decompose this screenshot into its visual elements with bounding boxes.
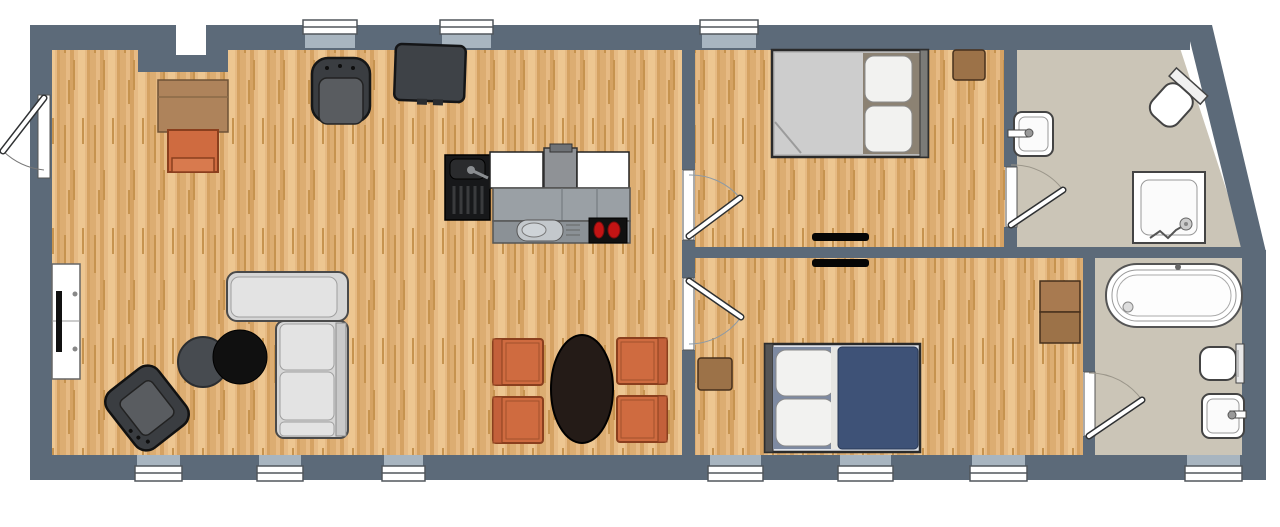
wall-interior-c2 (1004, 227, 1017, 250)
blanket-blue (838, 347, 918, 449)
tv-sideboard (52, 264, 80, 379)
office-chair (312, 58, 370, 124)
dining-chair-tr (617, 338, 667, 384)
kitchen-hood (544, 148, 577, 188)
media-cabinet (394, 44, 466, 106)
burner-1 (594, 222, 604, 238)
wall-interior-a3 (682, 350, 695, 455)
floor-plan (0, 0, 1280, 527)
bathroom-1-shower (1133, 172, 1205, 243)
wall-interior-b (695, 247, 1246, 258)
dresser (1040, 281, 1080, 343)
window-bathroom-2 (1185, 455, 1242, 481)
bathroom-2-toilet (1200, 344, 1244, 383)
bathtub-drain (1123, 302, 1133, 312)
floor-plan-canvas (0, 0, 1280, 527)
pillow (776, 399, 834, 446)
bed-1 (772, 50, 928, 157)
wall-interior-a2 (682, 240, 695, 278)
window-bottom-5 (838, 455, 893, 481)
dining-chair-tl (493, 339, 543, 385)
dining-table (551, 335, 613, 443)
entrance-door (3, 95, 50, 178)
dining-chair-bl (493, 397, 543, 443)
window-top-1 (303, 20, 357, 48)
wall-vent-bedroom-2 (812, 259, 869, 267)
wall-bottom (30, 455, 1266, 480)
headboard (765, 344, 773, 452)
bed-2 (765, 344, 920, 452)
bathroom-2-sink (1202, 394, 1246, 438)
window-bottom-1 (135, 455, 182, 481)
window-bottom-3 (382, 455, 425, 481)
window-bottom-2 (257, 455, 303, 481)
nightstand-bedroom-1 (953, 50, 985, 80)
wall-interior-d1 (1083, 258, 1095, 372)
bathroom-1-sink (1008, 112, 1053, 156)
headboard (920, 50, 928, 157)
wall-left (30, 25, 52, 480)
burner-2 (608, 222, 620, 238)
dining-chair-br (617, 396, 667, 442)
window-bottom-4 (708, 455, 763, 481)
window-top-2 (440, 20, 493, 48)
coffee-table-black (213, 330, 267, 384)
tv (56, 291, 62, 352)
wall-top-notch (176, 12, 206, 55)
wall-right (1242, 250, 1266, 480)
kitchen-counter-2 (577, 152, 629, 188)
window-bottom-6 (970, 455, 1027, 481)
pillow (865, 106, 912, 152)
nightstand-bedroom-2 (698, 358, 732, 390)
kitchen-counter-1 (490, 152, 543, 188)
pillow (776, 350, 834, 396)
window-top-3 (700, 20, 758, 48)
wall-vent-bedroom-1 (812, 233, 869, 241)
bathtub (1106, 264, 1242, 327)
desk (158, 80, 228, 132)
desk-chair (168, 130, 218, 172)
pillow (865, 56, 912, 102)
wall-interior-a1 (682, 48, 695, 170)
